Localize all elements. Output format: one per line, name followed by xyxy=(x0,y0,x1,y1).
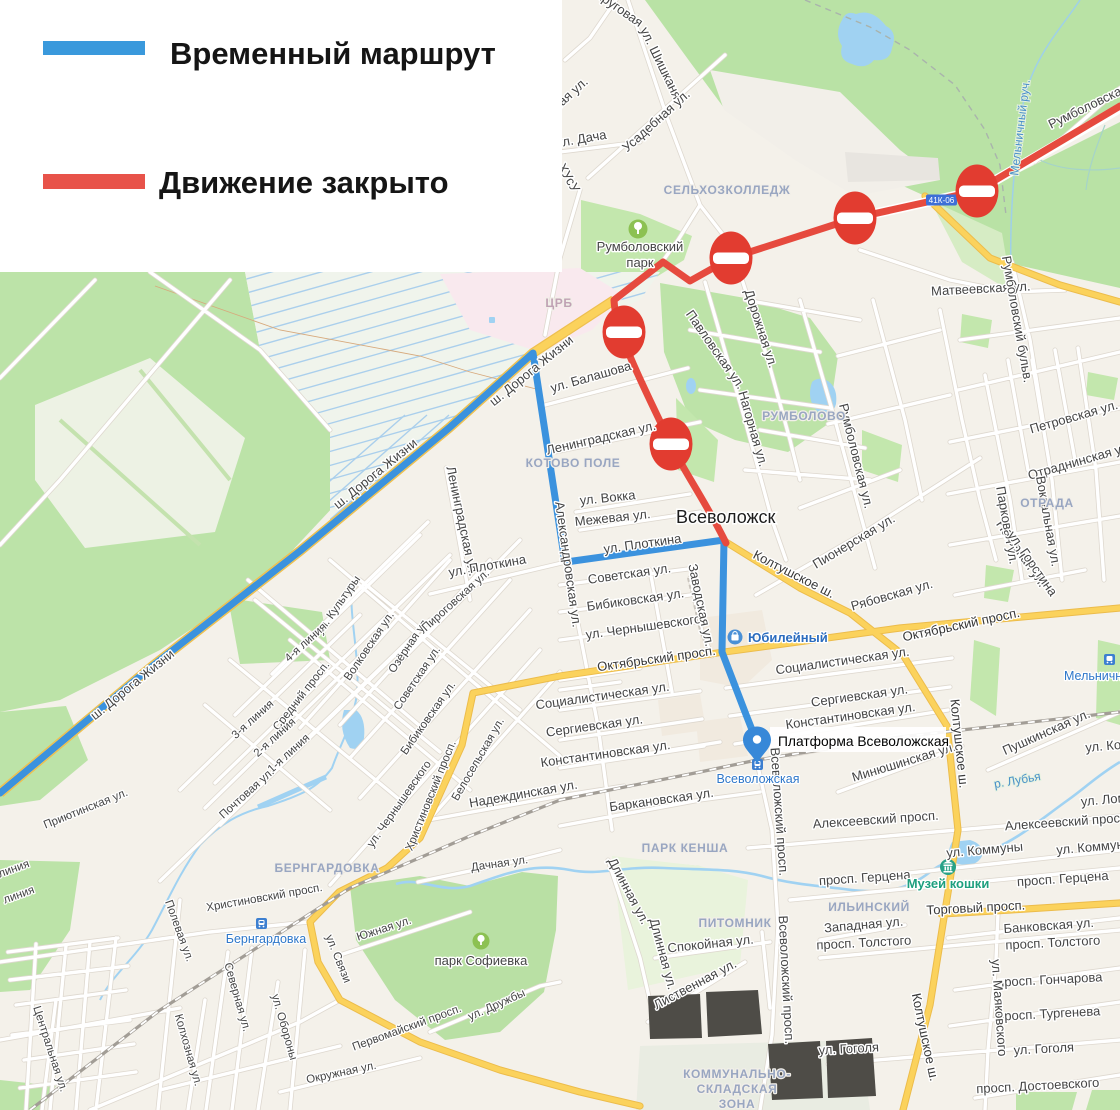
svg-text:СЕЛЬХОЗКОЛЛЕДЖ: СЕЛЬХОЗКОЛЛЕДЖ xyxy=(664,183,791,197)
svg-text:Временный маршрут: Временный маршрут xyxy=(170,36,496,71)
svg-text:РУМБОЛОВО: РУМБОЛОВО xyxy=(762,409,846,423)
svg-text:ПАРК КЕНША: ПАРК КЕНША xyxy=(642,841,729,855)
svg-text:41К-06: 41К-06 xyxy=(929,196,955,205)
svg-text:Бернгардовка: Бернгардовка xyxy=(226,932,307,946)
svg-text:КОТОВО ПОЛЕ: КОТОВО ПОЛЕ xyxy=(526,456,621,470)
svg-text:ул. Гоголя: ул. Гоголя xyxy=(818,1039,879,1057)
svg-text:ЗОНА: ЗОНА xyxy=(719,1097,755,1110)
svg-text:Движение закрыто: Движение закрыто xyxy=(159,165,449,200)
svg-text:КОММУНАЛЬНО-: КОММУНАЛЬНО- xyxy=(683,1067,791,1081)
svg-text:ИЛЬИНСКИЙ: ИЛЬИНСКИЙ xyxy=(828,899,910,914)
svg-text:Всеволожск: Всеволожск xyxy=(676,507,776,527)
svg-text:Юбилейный: Юбилейный xyxy=(748,630,828,645)
svg-text:ЦРБ: ЦРБ xyxy=(545,296,572,310)
svg-text:БЕРНГАРДОВКА: БЕРНГАРДОВКА xyxy=(275,861,380,875)
svg-text:ПИТОМНИК: ПИТОМНИК xyxy=(698,916,771,930)
svg-text:ул. Ком: ул. Ком xyxy=(1085,736,1120,755)
svg-text:СКЛАДСКАЯ: СКЛАДСКАЯ xyxy=(697,1082,778,1096)
svg-text:ОТРАДА: ОТРАДА xyxy=(1020,496,1074,510)
svg-text:Музей кошки: Музей кошки xyxy=(907,876,990,891)
svg-text:парк: парк xyxy=(626,255,653,270)
svg-text:Мельничный: Мельничный xyxy=(1064,669,1120,683)
svg-text:ул. Гоголя: ул. Гоголя xyxy=(1013,1039,1074,1057)
svg-text:Всеволожская: Всеволожская xyxy=(716,772,799,786)
svg-text:парк Софиевка: парк Софиевка xyxy=(435,953,528,968)
svg-text:Платформа Всеволожская: Платформа Всеволожская xyxy=(778,734,949,749)
svg-text:Румболовский: Румболовский xyxy=(597,239,684,254)
